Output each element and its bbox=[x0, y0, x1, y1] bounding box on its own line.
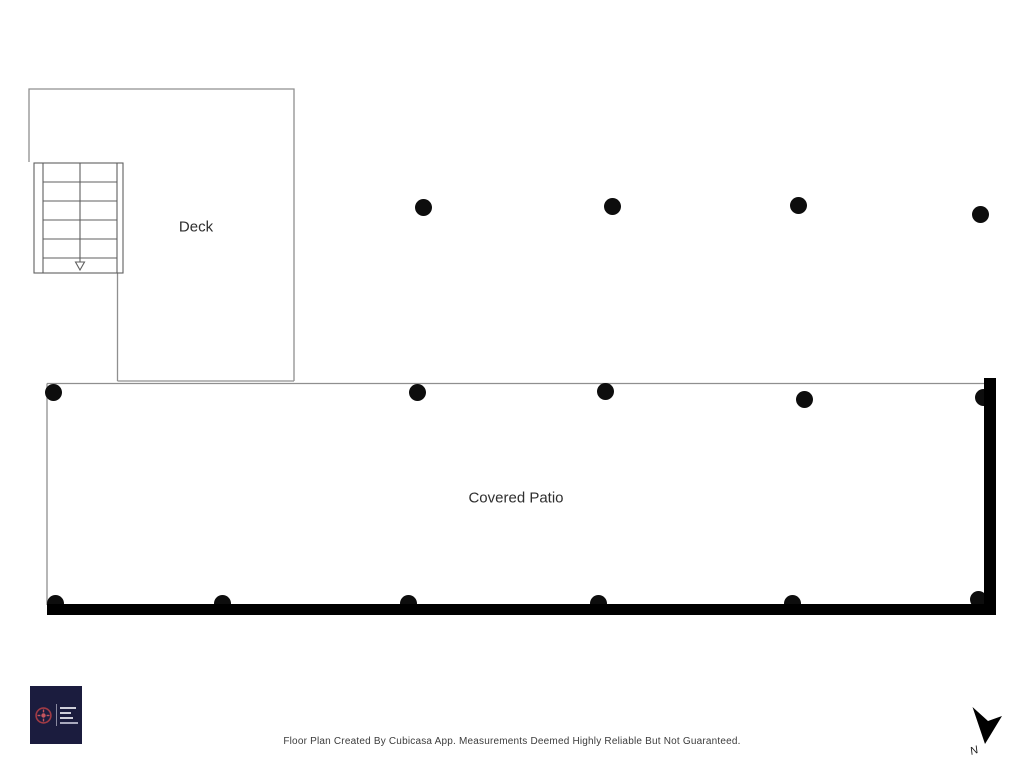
post-dot bbox=[597, 383, 614, 400]
post-dot bbox=[604, 198, 621, 215]
logo-divider bbox=[56, 704, 57, 726]
post-dot bbox=[45, 384, 62, 401]
patio-bottom-wall bbox=[47, 604, 996, 615]
floor-plan-page: { "plan": { "type": "floor-plan", "floor… bbox=[0, 0, 1024, 768]
footer-disclaimer: Floor Plan Created By Cubicasa App. Meas… bbox=[0, 736, 1024, 747]
logo-emblem-icon bbox=[35, 707, 52, 724]
post-dot bbox=[790, 197, 807, 214]
post-dot bbox=[409, 384, 426, 401]
north-arrow-dart bbox=[973, 707, 1003, 744]
post-dot bbox=[415, 199, 432, 216]
room-label-covered-patio: Covered Patio bbox=[468, 490, 563, 507]
room-label-deck: Deck bbox=[179, 219, 213, 236]
dots-layer bbox=[0, 0, 1024, 768]
logo-text-lines bbox=[60, 707, 78, 724]
north-arrow: N bbox=[958, 698, 1014, 762]
post-dot bbox=[796, 391, 813, 408]
north-label: N bbox=[969, 744, 980, 758]
post-dot bbox=[972, 206, 989, 223]
patio-right-wall bbox=[984, 378, 996, 615]
